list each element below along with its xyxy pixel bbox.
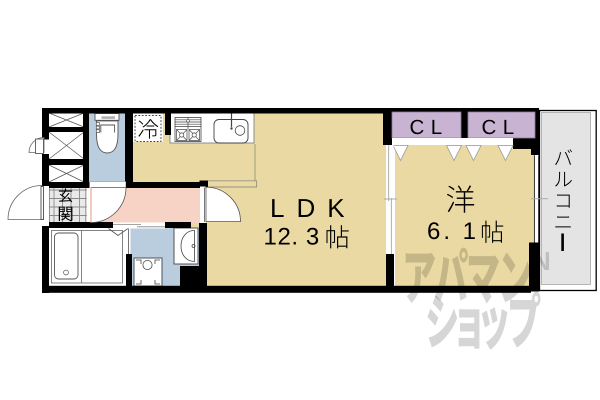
svg-text:12. 3: 12. 3: [264, 224, 320, 251]
svg-text:CL: CL: [482, 116, 521, 139]
svg-text:CL: CL: [410, 116, 449, 139]
svg-text:LDK: LDK: [270, 193, 357, 223]
svg-text:6. 1: 6. 1: [427, 218, 479, 245]
svg-text:N: N: [532, 246, 551, 276]
